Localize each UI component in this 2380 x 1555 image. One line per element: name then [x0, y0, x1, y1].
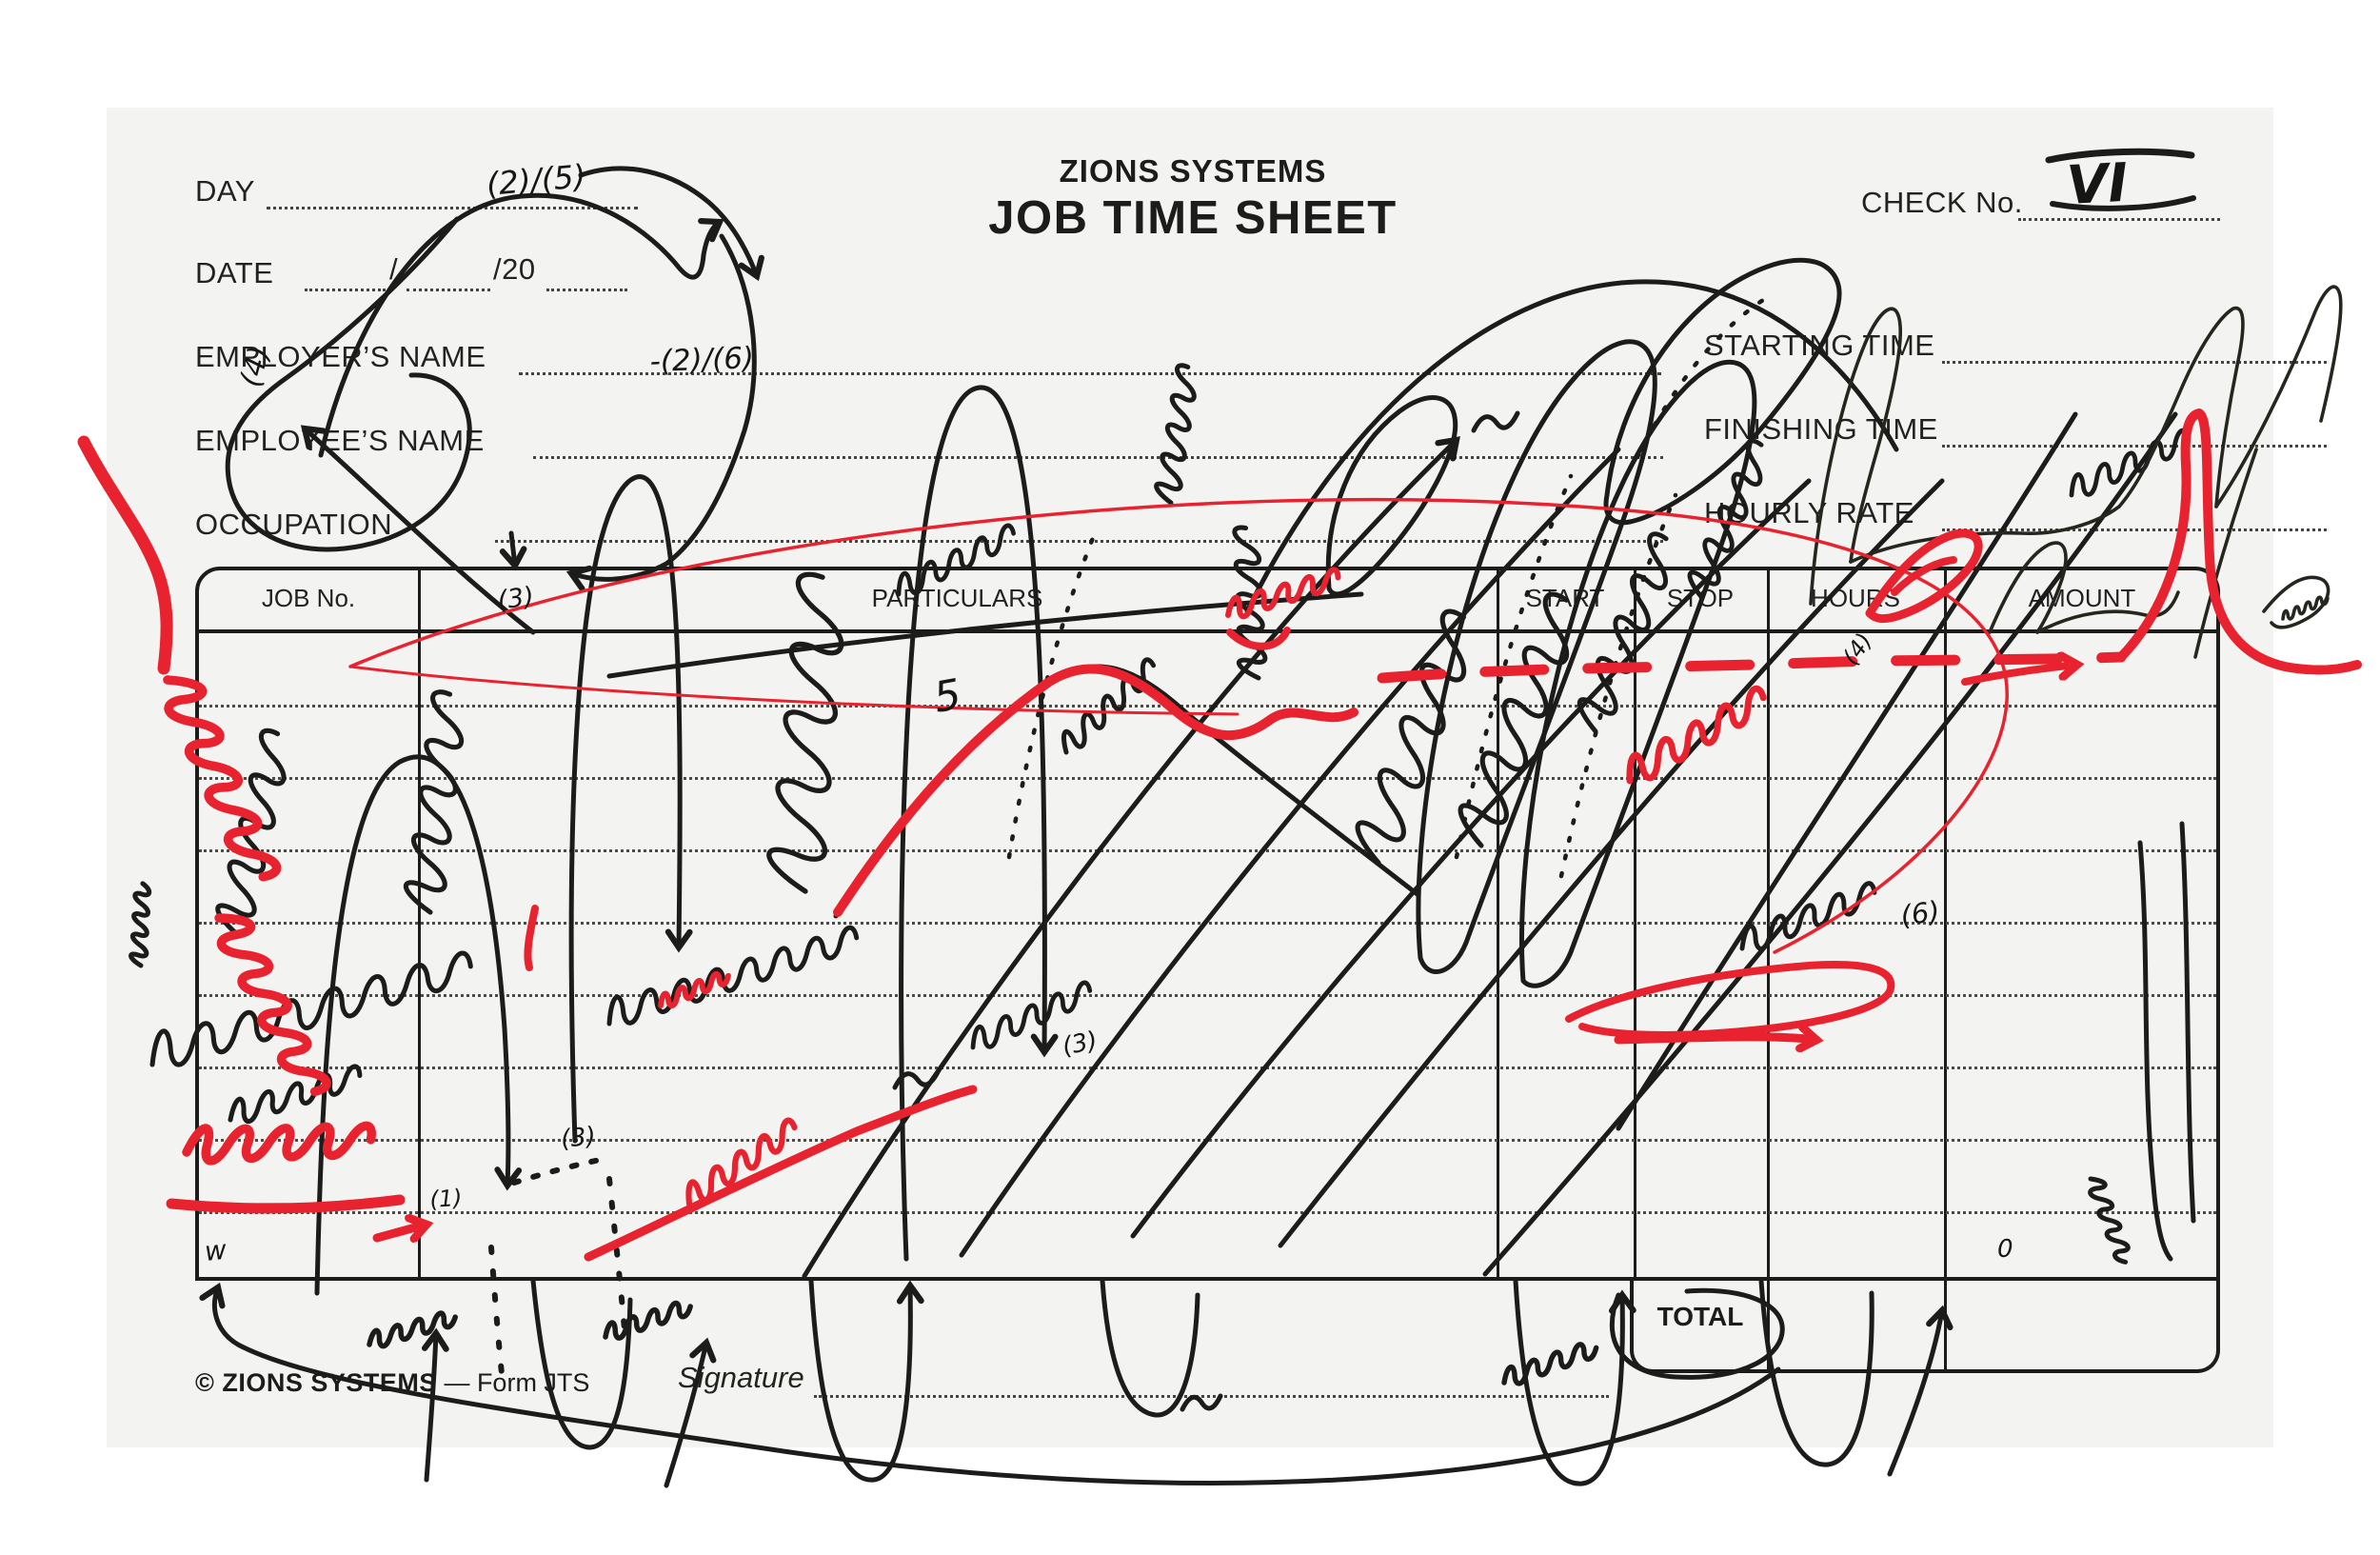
header-underline	[199, 629, 2216, 633]
occupation-line	[495, 540, 1663, 543]
total-strip: TOTAL	[1630, 1277, 2220, 1373]
col-stop: STOP	[1634, 584, 1767, 613]
company-name: ZIONS SYSTEMS	[907, 153, 1478, 189]
blank-row-line	[199, 922, 2216, 925]
col-hours: HOURS	[1767, 584, 1944, 613]
date-line-1	[305, 289, 386, 291]
employee-line	[533, 456, 1663, 459]
starting-time-label: STARTING TIME	[1704, 329, 1934, 363]
total-label: TOTAL	[1634, 1302, 1767, 1332]
check-no-label: CHECK No.	[1861, 186, 2023, 220]
form-name: JOB TIME SHEET	[907, 191, 1478, 245]
col-amount: AMOUNT	[1944, 584, 2220, 613]
day-label: DAY	[195, 174, 255, 209]
occupation-label: OCCUPATION	[195, 508, 392, 542]
signature-line	[814, 1395, 1609, 1398]
blank-row-line	[199, 994, 2216, 997]
employee-label: EMPLOYEE’S NAME	[195, 424, 485, 458]
copyright-company: © ZIONS SYSTEMS	[195, 1368, 437, 1397]
finishing-time-line	[1942, 445, 2327, 448]
date-slash: /	[389, 252, 398, 287]
form-ref: — Form JTS	[437, 1368, 590, 1397]
date-line-3	[546, 289, 627, 291]
starting-time-line	[1942, 361, 2327, 364]
blank-row-line	[199, 1139, 2216, 1142]
blank-row-line	[199, 1067, 2216, 1069]
copyright-line: © ZIONS SYSTEMS — Form JTS	[195, 1368, 589, 1398]
employer-label: EMPLOYER’S NAME	[195, 340, 486, 374]
finishing-time-label: FINISHING TIME	[1704, 412, 1938, 447]
date-year-prefix: /20	[493, 252, 536, 287]
date-label: DATE	[195, 256, 273, 290]
blank-row-line	[199, 705, 2216, 708]
time-sheet-table: JOB No. PARTICULARS START STOP HOURS AMO…	[195, 567, 2220, 1281]
day-line	[267, 207, 638, 209]
col-start: START	[1497, 584, 1634, 613]
hourly-rate-label: HOURLY RATE	[1704, 496, 1914, 530]
col-job-no: JOB No.	[199, 584, 418, 613]
check-no-line	[2018, 218, 2220, 221]
total-divider-2	[1944, 1277, 1947, 1369]
form-title-block: ZIONS SYSTEMS JOB TIME SHEET	[907, 153, 1478, 245]
total-divider-1	[1767, 1277, 1770, 1369]
blank-row-line	[199, 1211, 2216, 1214]
employer-line	[519, 372, 1661, 375]
paper-sheet: DAY DATE EMPLOYER’S NAME EMPLOYEE’S NAME…	[107, 108, 2273, 1447]
col-particulars: PARTICULARS	[418, 584, 1497, 613]
blank-row-line	[199, 849, 2216, 852]
signature-label: Signature	[678, 1361, 804, 1395]
scanned-job-time-sheet: DAY DATE EMPLOYER’S NAME EMPLOYEE’S NAME…	[0, 0, 2380, 1555]
hourly-rate-line	[1942, 528, 2327, 531]
blank-row-line	[199, 777, 2216, 780]
date-line-2	[407, 289, 490, 291]
